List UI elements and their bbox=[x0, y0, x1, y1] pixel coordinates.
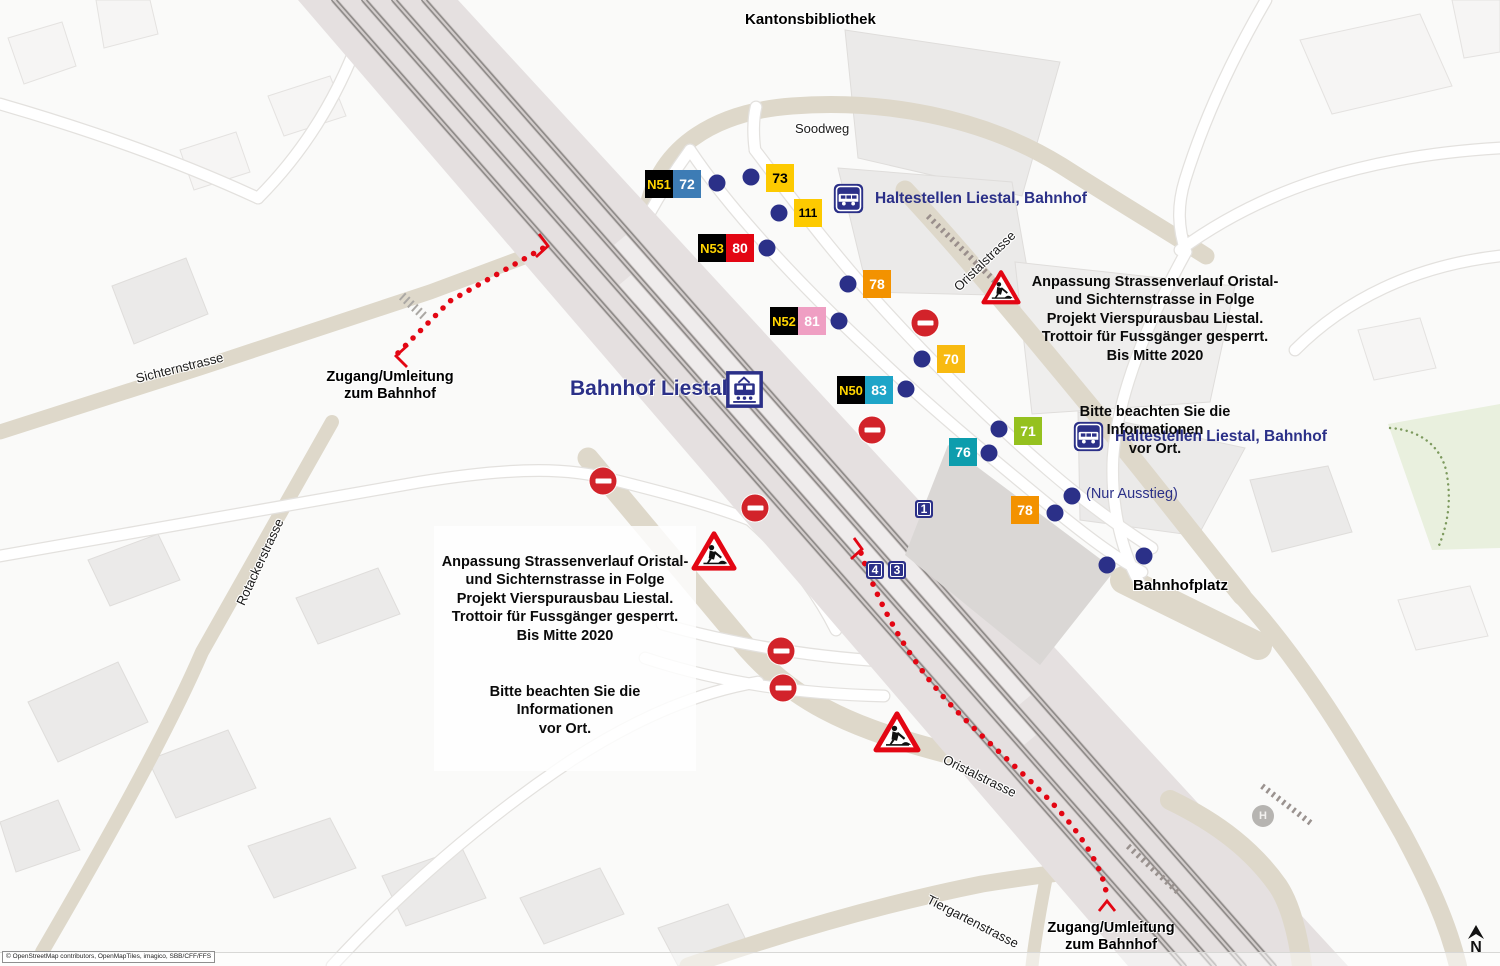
bus-line-badge: N5281 bbox=[770, 307, 826, 335]
street-name-label: Tiergartenstrasse bbox=[925, 893, 1021, 950]
bus-line-badge: 76 bbox=[949, 438, 977, 466]
stop-dot bbox=[771, 205, 788, 222]
construction-icon bbox=[981, 270, 1021, 305]
stop-dot bbox=[1047, 505, 1064, 522]
line-number-badge: 80 bbox=[726, 234, 754, 262]
street-name-label: Soodweg bbox=[795, 122, 849, 135]
map-overlay: Bahnhof Liestal bbox=[0, 0, 1500, 966]
night-line-badge: N50 bbox=[837, 376, 865, 404]
platform-number: 1 bbox=[921, 502, 928, 516]
street-name-label: Rotackerstrasse bbox=[234, 517, 285, 608]
bus-line-badge: 73 bbox=[766, 164, 794, 192]
bus-line-badge: N5083 bbox=[837, 376, 893, 404]
construction-notice: Anpassung Strassenverlauf Oristal- und S… bbox=[1030, 254, 1280, 477]
construction-notice-note: Bitte beachten Sie die Informationen vor… bbox=[1030, 403, 1280, 459]
stop-dot bbox=[1099, 557, 1116, 574]
train-station-icon bbox=[726, 371, 763, 413]
line-number-badge: 78 bbox=[863, 270, 891, 298]
construction-icon bbox=[691, 531, 737, 571]
line-number-badge: 83 bbox=[865, 376, 893, 404]
construction-notice-text: Anpassung Strassenverlauf Oristal- und S… bbox=[1030, 273, 1280, 366]
platform-sign: 4 bbox=[866, 561, 884, 579]
bus-line-badge: 70 bbox=[937, 345, 965, 373]
night-line-badge: N52 bbox=[770, 307, 798, 335]
bus-line-badge: 111 bbox=[794, 199, 822, 227]
station-name-label: Bahnhof Liestal bbox=[570, 377, 728, 401]
detour-access-label: Zugang/Umleitung zum Bahnhof bbox=[326, 369, 453, 403]
poi-label: Kantonsbibliothek bbox=[745, 12, 876, 27]
poi-label: Bahnhofplatz bbox=[1133, 578, 1228, 593]
stop-dot bbox=[981, 445, 998, 462]
line-number-badge: 73 bbox=[766, 164, 794, 192]
no-entry-icon bbox=[590, 468, 617, 495]
line-number-badge: 70 bbox=[937, 345, 965, 373]
stop-dot bbox=[709, 175, 726, 192]
line-number-badge: 81 bbox=[798, 307, 826, 335]
bus-stops-callout: Haltestellen Liestal, Bahnhof bbox=[833, 183, 1087, 214]
line-number-badge: 78 bbox=[1011, 496, 1039, 524]
detour-access-label: Zugang/Umleitung zum Bahnhof bbox=[1047, 920, 1174, 954]
stop-dot bbox=[898, 381, 915, 398]
no-entry-icon bbox=[859, 417, 886, 444]
platform-number: 4 bbox=[872, 563, 879, 577]
platform-sign: 3 bbox=[888, 561, 906, 579]
bus-stop-icon bbox=[833, 183, 864, 214]
bus-line-badge: N5380 bbox=[698, 234, 754, 262]
stop-dot bbox=[1136, 548, 1153, 565]
no-entry-icon bbox=[768, 638, 795, 665]
stop-dot bbox=[743, 169, 760, 186]
night-line-badge: N53 bbox=[698, 234, 726, 262]
night-line-badge: N51 bbox=[645, 170, 673, 198]
nur-ausstieg-label: (Nur Ausstieg) bbox=[1086, 486, 1178, 502]
stop-dot bbox=[914, 351, 931, 368]
bus-line-badge: 71 bbox=[1014, 417, 1042, 445]
north-indicator: N bbox=[1463, 924, 1489, 955]
map-canvas: Bahnhof Liestal bbox=[0, 0, 1500, 966]
no-entry-icon bbox=[742, 495, 769, 522]
bus-line-badge: 78 bbox=[1011, 496, 1039, 524]
platform-number: 3 bbox=[894, 563, 901, 577]
map-attribution: © OpenStreetMap contributors, OpenMapTil… bbox=[2, 951, 215, 963]
no-entry-icon bbox=[770, 675, 797, 702]
bus-line-badge: N5172 bbox=[645, 170, 701, 198]
construction-notice-note: Bitte beachten Sie die Informationen vor… bbox=[440, 683, 690, 739]
street-name-label: Oristalstrasse bbox=[941, 753, 1018, 800]
line-number-badge: 111 bbox=[794, 199, 822, 227]
bus-stops-label: Haltestellen Liestal, Bahnhof bbox=[875, 190, 1087, 208]
line-number-badge: 71 bbox=[1014, 417, 1042, 445]
construction-notice: Anpassung Strassenverlauf Oristal- und S… bbox=[434, 526, 696, 771]
stop-dot bbox=[831, 313, 848, 330]
construction-notice-text: Anpassung Strassenverlauf Oristal- und S… bbox=[440, 553, 690, 646]
platform-sign: 1 bbox=[915, 500, 933, 518]
stop-dot bbox=[840, 276, 857, 293]
stop-dot bbox=[1064, 488, 1081, 505]
h-stop-icon: H bbox=[1252, 805, 1274, 827]
stop-dot bbox=[759, 240, 776, 257]
line-number-badge: 72 bbox=[673, 170, 701, 198]
construction-icon bbox=[873, 711, 921, 753]
no-entry-icon bbox=[912, 310, 939, 337]
map-edge-strip bbox=[0, 952, 1500, 966]
bus-line-badge: 78 bbox=[863, 270, 891, 298]
stop-dot bbox=[991, 421, 1008, 438]
line-number-badge: 76 bbox=[949, 438, 977, 466]
street-name-label: Sichternstrasse bbox=[134, 351, 224, 385]
